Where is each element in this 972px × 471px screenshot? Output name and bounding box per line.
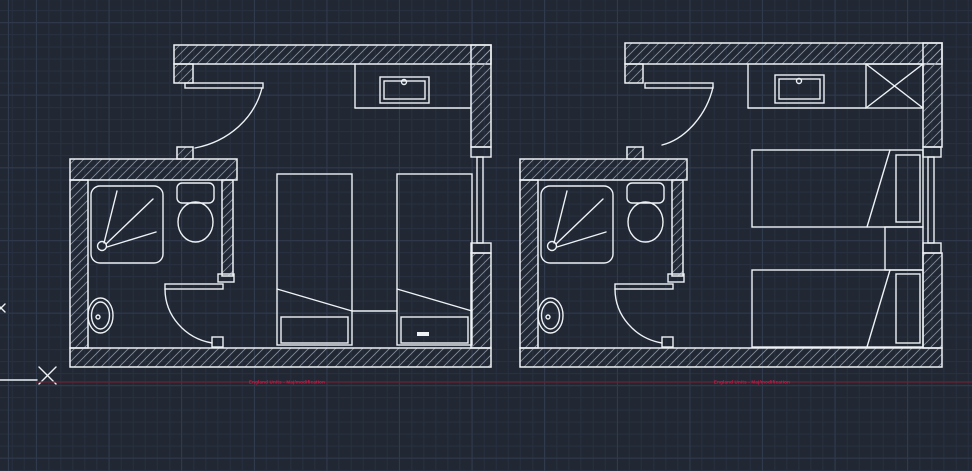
top-wall (625, 43, 942, 64)
right-wall-upper (471, 45, 491, 147)
basin-inner (542, 302, 560, 329)
bottom-wall (70, 348, 491, 367)
window-sill (471, 147, 491, 157)
bathroom-partition (672, 180, 683, 276)
bottom-wall (520, 348, 942, 367)
door-stop (627, 147, 643, 159)
toilet-cistern (627, 183, 664, 203)
pillow (896, 274, 920, 343)
bath-door-stop (212, 337, 223, 347)
drawing-svg (0, 0, 972, 471)
window-sill (471, 243, 491, 253)
window-sill (923, 147, 941, 157)
bed (752, 150, 923, 227)
left-plan-label: England Units - Maj/modification (249, 380, 325, 385)
top-wall (174, 45, 491, 64)
right-floor-plan (520, 43, 942, 367)
bath-door-leaf (165, 284, 223, 289)
right-wall-upper (923, 43, 942, 147)
toilet-bowl (628, 202, 663, 242)
pillow (401, 317, 468, 343)
right-wall-lower (923, 253, 942, 348)
shower-spray (107, 232, 156, 247)
right-wall-lower (471, 253, 491, 348)
door-jamb (174, 64, 193, 83)
basin-drain (546, 315, 550, 319)
door-jamb (625, 64, 643, 83)
sink-tap (402, 80, 407, 85)
bed-fold (397, 289, 472, 311)
basin-inner (92, 302, 110, 329)
bathroom-wall (520, 159, 687, 180)
bath-door-leaf (615, 284, 673, 289)
bathroom-partition (222, 180, 233, 276)
bed (752, 270, 923, 347)
bath-door-stop (662, 337, 673, 347)
window-mullion (928, 157, 934, 243)
left-wall (70, 180, 88, 348)
window-mullion (477, 157, 483, 243)
basin-drain (96, 315, 100, 319)
model-space-canvas[interactable]: England Units - Maj/modification England… (0, 0, 972, 471)
left-floor-plan (70, 45, 491, 367)
window-sill (923, 243, 941, 253)
pillow (896, 155, 920, 222)
entry-door-leaf (185, 83, 263, 88)
entry-door-leaf (645, 83, 713, 88)
sink-inner (779, 79, 820, 99)
bed (397, 174, 472, 345)
entry-door-swing (195, 88, 262, 148)
bath-door-swing (165, 289, 212, 343)
bed-fold (277, 289, 352, 311)
sink-inner (384, 81, 425, 99)
bed (277, 174, 352, 345)
bathroom-wall (70, 159, 237, 180)
pillow-tag (417, 332, 429, 336)
bed-fold (867, 150, 890, 227)
bedside-table (885, 227, 923, 270)
shower-drain (98, 242, 107, 251)
bed-fold (867, 270, 890, 347)
entry-door-swing (662, 87, 713, 145)
bath-door-swing (615, 289, 662, 343)
toilet-bowl (178, 202, 213, 242)
shower-drain (548, 242, 557, 251)
pillow (281, 317, 348, 343)
right-plan-label: England Units - Maj/modification (714, 380, 790, 385)
toilet-cistern (177, 183, 214, 203)
left-wall (520, 180, 538, 348)
shower-spray (557, 232, 606, 247)
door-stop (177, 147, 193, 159)
